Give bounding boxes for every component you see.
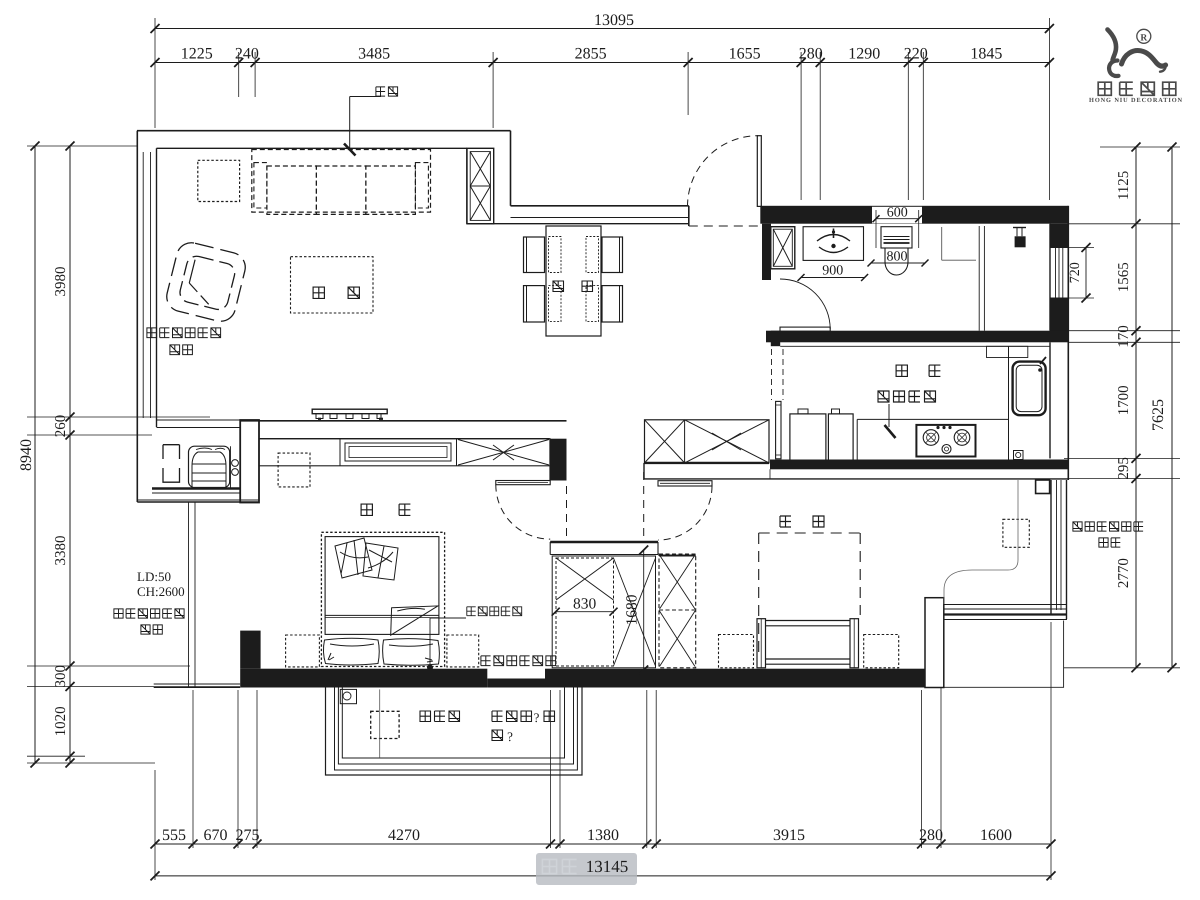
svg-text:220: 220: [904, 46, 928, 63]
svg-text:3485: 3485: [358, 46, 390, 63]
svg-text:?: ?: [507, 729, 513, 744]
svg-text:1565: 1565: [1116, 262, 1132, 292]
svg-text:3980: 3980: [53, 267, 69, 297]
svg-text:HONG NIU DECORATION: HONG NIU DECORATION: [1089, 97, 1183, 104]
svg-text:280: 280: [799, 46, 823, 63]
svg-text:CH:2600: CH:2600: [137, 584, 185, 599]
svg-text:LD:50: LD:50: [137, 569, 171, 584]
svg-text:1380: 1380: [587, 827, 619, 844]
svg-text:260: 260: [53, 415, 69, 438]
svg-text:555: 555: [162, 827, 186, 844]
svg-text:670: 670: [204, 827, 228, 844]
svg-text:8940: 8940: [18, 439, 35, 471]
svg-text:13095: 13095: [594, 12, 634, 29]
svg-text:720: 720: [1068, 262, 1083, 283]
svg-text:13145: 13145: [586, 857, 629, 876]
svg-text:275: 275: [236, 827, 260, 844]
svg-text:1020: 1020: [53, 706, 69, 736]
svg-text:300: 300: [53, 665, 69, 688]
svg-text:1600: 1600: [980, 827, 1012, 844]
svg-text:2855: 2855: [575, 46, 607, 63]
svg-text:1700: 1700: [1116, 385, 1132, 415]
svg-text:1125: 1125: [1116, 171, 1132, 200]
svg-text:7625: 7625: [1150, 399, 1167, 431]
svg-text:?: ?: [534, 710, 540, 725]
svg-text:830: 830: [573, 596, 597, 613]
svg-text:3380: 3380: [53, 536, 69, 566]
svg-text:1845: 1845: [970, 46, 1002, 63]
svg-text:1655: 1655: [729, 46, 761, 63]
svg-text:3915: 3915: [773, 827, 805, 844]
svg-text:900: 900: [822, 264, 843, 279]
svg-text:2770: 2770: [1116, 558, 1132, 588]
svg-text:800: 800: [887, 250, 908, 265]
svg-text:1290: 1290: [848, 46, 880, 63]
svg-text:4270: 4270: [388, 827, 420, 844]
svg-text:R: R: [1140, 34, 1147, 44]
svg-text:170: 170: [1116, 325, 1132, 348]
svg-text:600: 600: [887, 206, 908, 221]
svg-text:295: 295: [1116, 457, 1132, 480]
svg-text:280: 280: [919, 827, 943, 844]
svg-text:1225: 1225: [181, 46, 213, 63]
